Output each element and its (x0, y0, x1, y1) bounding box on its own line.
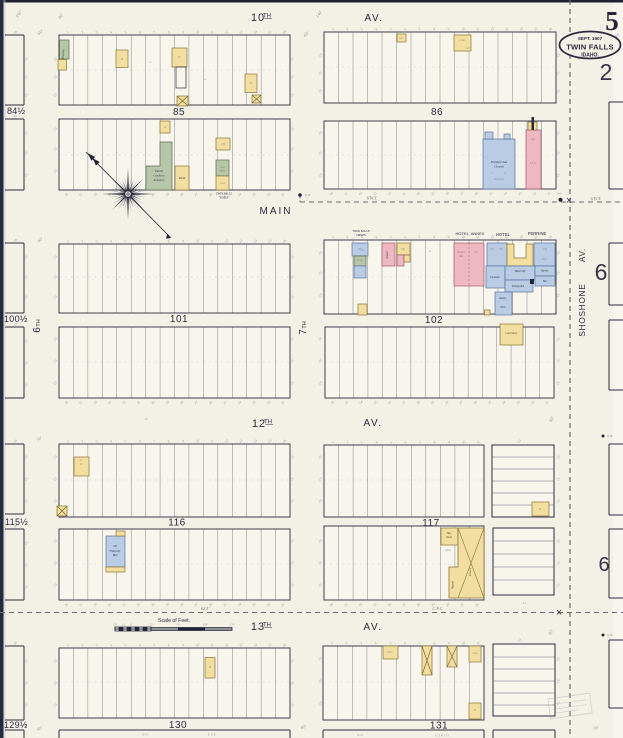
svg-text:130: 130 (169, 720, 187, 731)
svg-text:Tge: Tge (531, 138, 536, 141)
svg-text:Barber: Barber (541, 270, 549, 273)
svg-text:Livery: Livery (468, 567, 472, 577)
svg-text:2D: 2D (113, 545, 116, 548)
svg-text:O.H.: O.H. (607, 434, 613, 438)
svg-text:Hay: Hay (446, 532, 452, 535)
svg-text:HOTEL ANNEX: HOTEL ANNEX (456, 231, 485, 236)
svg-text:& Pantry: & Pantry (153, 178, 165, 182)
svg-text:Scale of Feet.: Scale of Feet. (158, 618, 190, 624)
svg-text:62.5': 62.5' (201, 606, 210, 611)
svg-text:S.T.O.: S.T.O. (530, 162, 537, 165)
svg-text:Pantry: Pantry (498, 297, 507, 300)
svg-text:Kit'n: Kit'n (499, 306, 506, 309)
svg-text:D.H.: D.H. (304, 193, 311, 197)
svg-text:E X P O S .: E X P O S . (434, 734, 451, 738)
svg-text:131: 131 (430, 721, 448, 732)
svg-text:IDAHO.: IDAHO. (581, 53, 599, 59)
svg-text:129½: 129½ (4, 720, 28, 730)
svg-text:10: 10 (122, 623, 126, 627)
svg-text:Wagons: Wagons (452, 581, 455, 589)
svg-text:SHOSHONE: SHOSHONE (578, 283, 587, 336)
svg-text:102: 102 (425, 315, 443, 326)
svg-text:Sample: Sample (457, 251, 466, 254)
svg-text:AV.: AV. (364, 622, 383, 633)
svg-text:N O: N O (141, 733, 148, 737)
svg-text:NEWS: NEWS (357, 233, 366, 237)
svg-text:AV.: AV. (365, 13, 384, 24)
svg-text:150: 150 (230, 623, 235, 627)
svg-text:117: 117 (422, 518, 439, 529)
svg-text:D: D (249, 81, 253, 85)
svg-text:Saloon: Saloon (386, 251, 389, 259)
svg-text:Hall: Hall (112, 554, 118, 557)
svg-text:D: D (177, 55, 181, 59)
svg-text:50: 50 (177, 623, 181, 627)
svg-text:6'W.T.: 6'W.T. (591, 196, 602, 201)
svg-text:100½: 100½ (4, 314, 28, 324)
svg-text:101: 101 (170, 314, 188, 325)
svg-text:Hotel Off: Hotel Off (514, 270, 527, 273)
svg-text:116: 116 (168, 518, 185, 529)
svg-text:Crockery: Crockery (153, 174, 165, 178)
svg-text:1h: 1h (144, 417, 148, 421)
svg-text:Mdse: Mdse (218, 170, 226, 173)
svg-text:2 Gas: 2 Gas (459, 39, 466, 42)
svg-text:D: D (120, 57, 124, 61)
svg-text:6: 6 (595, 259, 608, 285)
svg-text:Parish: Parish (154, 169, 164, 173)
svg-text:6: 6 (32, 327, 43, 333)
svg-text:Sal: Sal (474, 251, 478, 254)
svg-text:44: 44 (522, 601, 526, 605)
svg-text:TWIN FALLS: TWIN FALLS (566, 43, 614, 52)
svg-text:HOTEL: HOTEL (496, 232, 511, 237)
svg-text:AV.: AV. (364, 418, 383, 429)
svg-text:Fraternity: Fraternity (109, 550, 122, 553)
svg-text:TH: TH (302, 321, 308, 328)
svg-text:p.o.: p.o. (557, 191, 563, 195)
svg-text:Presbyterian: Presbyterian (490, 160, 508, 164)
svg-text:Paint: Paint (178, 176, 186, 180)
svg-text:not fin'd: not fin'd (494, 178, 504, 181)
svg-text:Cem: Cem (220, 182, 225, 185)
svg-text:E X P.: E X P. (207, 733, 216, 737)
svg-text:Church: Church (494, 165, 504, 169)
svg-text:N O: N O (356, 733, 363, 737)
svg-text:6: 6 (598, 554, 609, 576)
svg-text:115½: 115½ (5, 517, 28, 527)
svg-text:86: 86 (431, 107, 443, 118)
svg-text:TH: TH (36, 319, 42, 326)
svg-text:A: A (163, 125, 166, 129)
svg-text:O.H.: O.H. (607, 633, 613, 637)
svg-text:Office: Office (445, 549, 453, 552)
svg-text:7: 7 (298, 329, 309, 335)
svg-text:25: 25 (150, 623, 154, 627)
svg-text:Dining Rm: Dining Rm (511, 285, 524, 288)
svg-text:5: 5 (605, 6, 619, 36)
svg-text:Coal Shed: Coal Shed (505, 332, 517, 335)
svg-text:Rm: Rm (458, 255, 463, 258)
svg-text:Carp: Carp (472, 652, 478, 655)
svg-text:20: 20 (114, 623, 118, 627)
svg-text:Off C: Off C (542, 258, 548, 261)
svg-text:C.P.C.: C.P.C. (432, 606, 443, 611)
svg-text:"TIMES": "TIMES" (218, 196, 230, 200)
svg-text:Laundry: Laundry (489, 276, 500, 279)
svg-text:2: 2 (600, 59, 613, 85)
svg-text:Gas: Gas (399, 37, 403, 40)
svg-text:85: 85 (173, 107, 185, 118)
svg-text:Prt'g: Prt'g (356, 259, 363, 262)
svg-text:100: 100 (203, 623, 208, 627)
svg-text:84½: 84½ (7, 106, 26, 116)
svg-text:Shed: Shed (446, 536, 452, 539)
svg-text:SEPT. 1907: SEPT. 1907 (578, 36, 603, 41)
svg-text:Ware: Ware (387, 651, 393, 654)
svg-text:AV.: AV. (578, 248, 587, 262)
svg-text:MAIN: MAIN (260, 206, 293, 217)
svg-text:6'W.T.: 6'W.T. (367, 196, 378, 201)
svg-text:Planing: Planing (61, 49, 65, 60)
svg-text:PERRINE: PERRINE (528, 231, 547, 236)
